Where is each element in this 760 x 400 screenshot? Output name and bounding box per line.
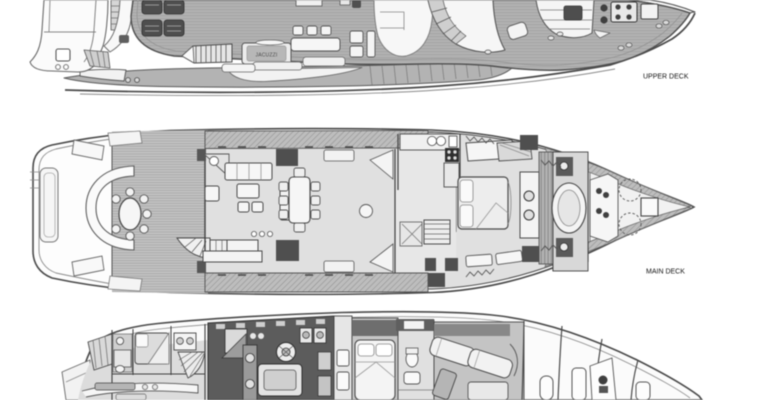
svg-text:MAIN DECK: MAIN DECK bbox=[646, 269, 685, 276]
svg-text:JACUZZI: JACUZZI bbox=[256, 53, 278, 59]
svg-text:UPPER DECK: UPPER DECK bbox=[643, 74, 689, 81]
